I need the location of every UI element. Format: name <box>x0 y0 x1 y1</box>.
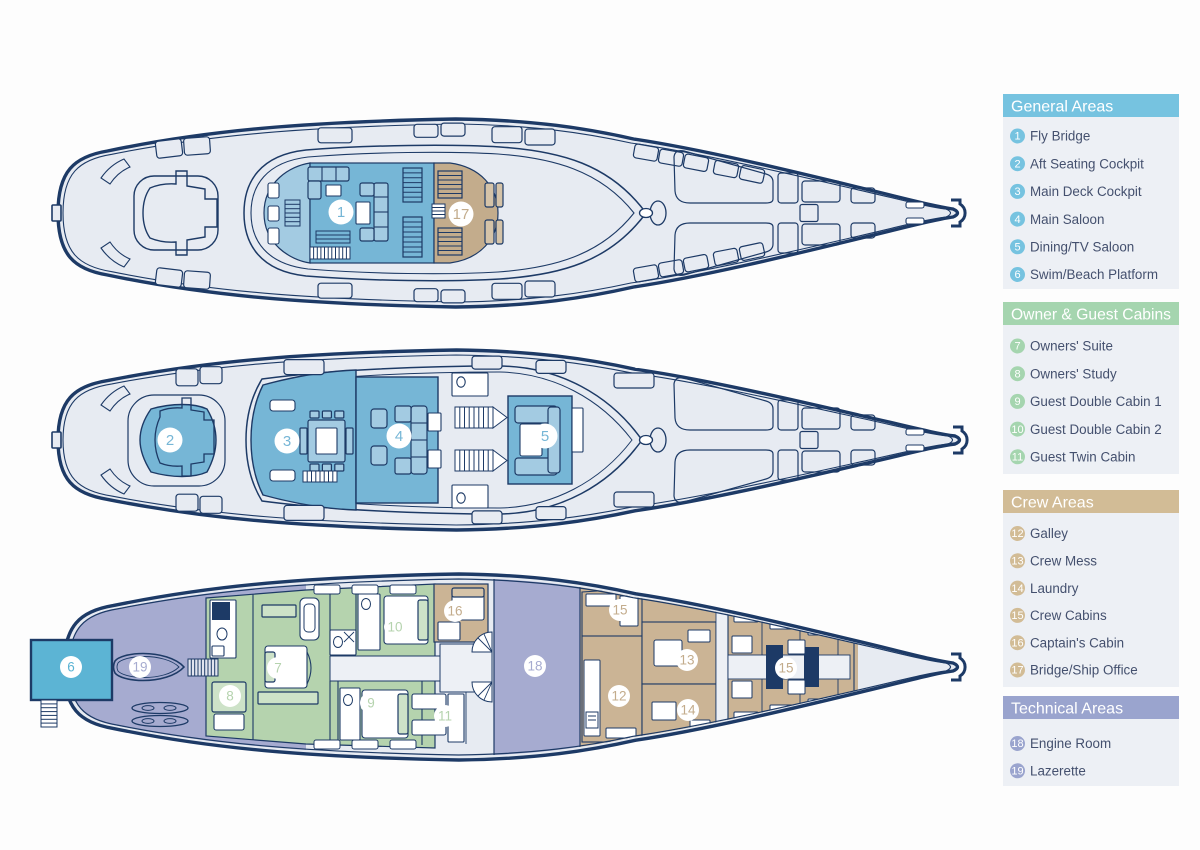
svg-text:4: 4 <box>1014 214 1020 226</box>
svg-text:16: 16 <box>447 604 462 619</box>
svg-text:5: 5 <box>541 428 549 445</box>
svg-text:Swim/Beach Platform: Swim/Beach Platform <box>1030 267 1158 282</box>
svg-text:Guest Double Cabin 2: Guest Double Cabin 2 <box>1030 422 1162 437</box>
svg-text:1: 1 <box>337 204 345 221</box>
svg-text:8: 8 <box>226 689 234 704</box>
svg-text:14: 14 <box>1011 583 1023 595</box>
svg-text:3: 3 <box>1014 186 1020 198</box>
svg-text:14: 14 <box>680 703 696 718</box>
svg-text:2: 2 <box>166 432 174 449</box>
svg-text:Technical Areas: Technical Areas <box>1011 701 1123 718</box>
svg-text:Captain's Cabin: Captain's Cabin <box>1030 635 1124 650</box>
svg-text:Bridge/Ship Office: Bridge/Ship Office <box>1030 663 1138 678</box>
svg-text:6: 6 <box>1014 269 1020 281</box>
svg-text:10: 10 <box>387 620 402 635</box>
svg-text:Lazerette: Lazerette <box>1030 764 1086 779</box>
svg-text:Main Deck Cockpit: Main Deck Cockpit <box>1030 184 1142 199</box>
svg-text:15: 15 <box>778 661 793 676</box>
svg-text:9: 9 <box>1014 396 1020 408</box>
svg-text:Aft Seating Cockpit: Aft Seating Cockpit <box>1030 156 1144 171</box>
svg-text:Galley: Galley <box>1030 526 1068 541</box>
svg-text:11: 11 <box>438 709 452 724</box>
svg-text:13: 13 <box>1011 556 1023 568</box>
svg-text:7: 7 <box>274 661 282 676</box>
svg-text:15: 15 <box>612 603 627 618</box>
svg-text:6: 6 <box>67 660 75 675</box>
svg-text:Crew Cabins: Crew Cabins <box>1030 608 1107 623</box>
svg-text:17: 17 <box>1011 665 1023 677</box>
svg-text:Crew Areas: Crew Areas <box>1011 495 1094 512</box>
svg-text:18: 18 <box>527 659 542 674</box>
svg-text:Laundry: Laundry <box>1030 581 1079 596</box>
svg-text:Main Saloon: Main Saloon <box>1030 212 1104 227</box>
svg-text:12: 12 <box>611 689 626 704</box>
svg-text:4: 4 <box>395 428 403 445</box>
svg-text:2: 2 <box>1014 158 1020 170</box>
svg-text:17: 17 <box>453 206 470 223</box>
svg-text:Fly Bridge: Fly Bridge <box>1030 129 1090 144</box>
svg-text:3: 3 <box>283 433 291 450</box>
svg-text:16: 16 <box>1011 637 1023 649</box>
svg-text:8: 8 <box>1014 368 1020 380</box>
svg-text:Owners' Study: Owners' Study <box>1030 366 1117 381</box>
svg-text:Owners' Suite: Owners' Suite <box>1030 339 1113 354</box>
svg-text:19: 19 <box>132 660 147 675</box>
svg-text:15: 15 <box>1011 610 1023 622</box>
svg-text:Engine Room: Engine Room <box>1030 736 1111 751</box>
svg-text:9: 9 <box>367 696 375 711</box>
svg-text:General Areas: General Areas <box>1011 99 1113 116</box>
svg-text:Guest Twin Cabin: Guest Twin Cabin <box>1030 450 1135 465</box>
svg-text:Guest Double Cabin 1: Guest Double Cabin 1 <box>1030 394 1162 409</box>
svg-text:Dining/TV Saloon: Dining/TV Saloon <box>1030 240 1134 255</box>
svg-text:12: 12 <box>1011 528 1023 540</box>
svg-text:Crew Mess: Crew Mess <box>1030 554 1097 569</box>
svg-text:18: 18 <box>1011 738 1023 750</box>
svg-text:1: 1 <box>1014 131 1020 143</box>
svg-text:13: 13 <box>679 653 694 668</box>
svg-text:10: 10 <box>1011 424 1023 436</box>
svg-text:11: 11 <box>1012 452 1023 464</box>
svg-text:19: 19 <box>1011 766 1023 778</box>
svg-text:Owner & Guest Cabins: Owner & Guest Cabins <box>1011 307 1171 324</box>
svg-text:5: 5 <box>1014 242 1020 254</box>
svg-text:7: 7 <box>1014 341 1020 353</box>
